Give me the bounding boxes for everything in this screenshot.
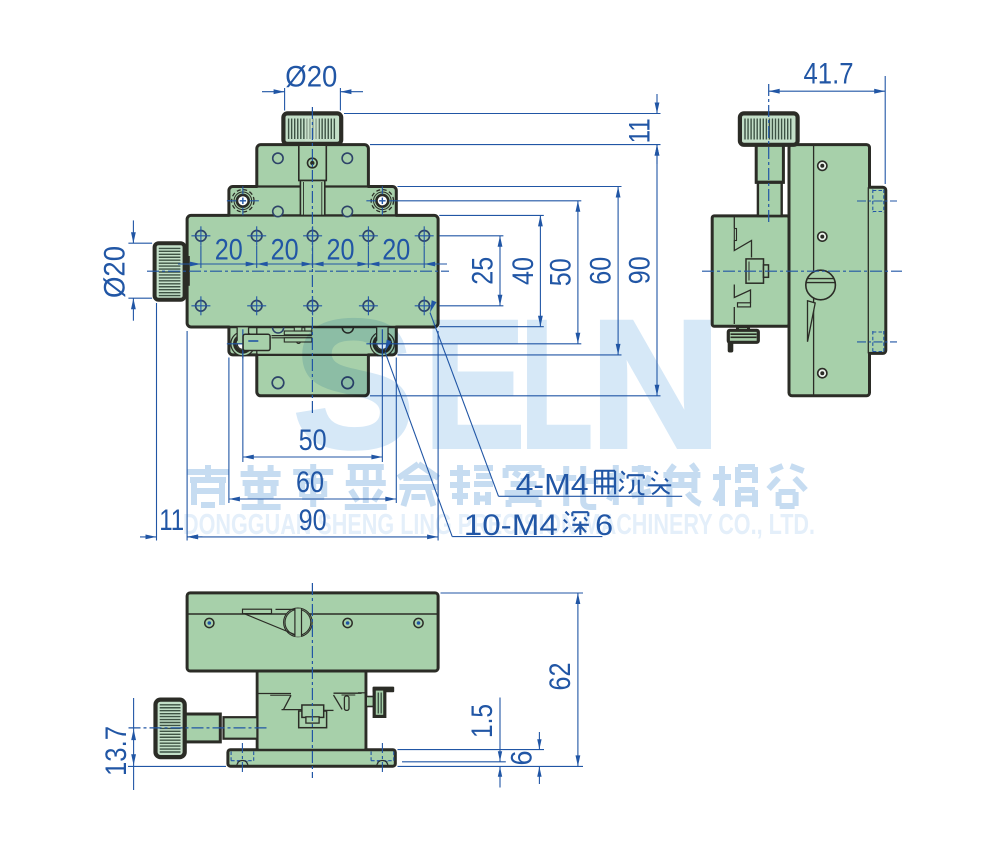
svg-text:20: 20	[327, 234, 355, 267]
svg-text:90: 90	[624, 256, 657, 284]
svg-text:10-M4: 10-M4	[464, 509, 558, 542]
svg-text:41.7: 41.7	[804, 58, 854, 91]
svg-text:40: 40	[507, 257, 540, 285]
svg-text:50: 50	[299, 424, 327, 457]
svg-text:62: 62	[544, 663, 577, 691]
svg-text:Ø20: Ø20	[285, 60, 337, 93]
svg-text:4-M4: 4-M4	[516, 469, 589, 502]
svg-text:1.5: 1.5	[466, 704, 499, 738]
svg-text:11: 11	[159, 504, 184, 537]
svg-text:20: 20	[382, 234, 410, 267]
svg-text:N: N	[590, 282, 721, 486]
svg-text:L: L	[520, 282, 592, 486]
svg-text:13.7: 13.7	[100, 726, 133, 776]
svg-text:90: 90	[299, 504, 327, 537]
svg-text:60: 60	[296, 466, 324, 499]
svg-text:50: 50	[544, 258, 577, 286]
svg-text:6: 6	[595, 509, 613, 542]
svg-text:Ø20: Ø20	[99, 246, 132, 298]
svg-text:20: 20	[271, 234, 299, 267]
svg-text:6: 6	[505, 751, 538, 766]
svg-text:25: 25	[467, 257, 500, 285]
svg-text:11: 11	[624, 118, 657, 143]
svg-text:20: 20	[215, 234, 243, 267]
svg-text:60: 60	[585, 257, 618, 285]
svg-text:E: E	[424, 282, 525, 486]
